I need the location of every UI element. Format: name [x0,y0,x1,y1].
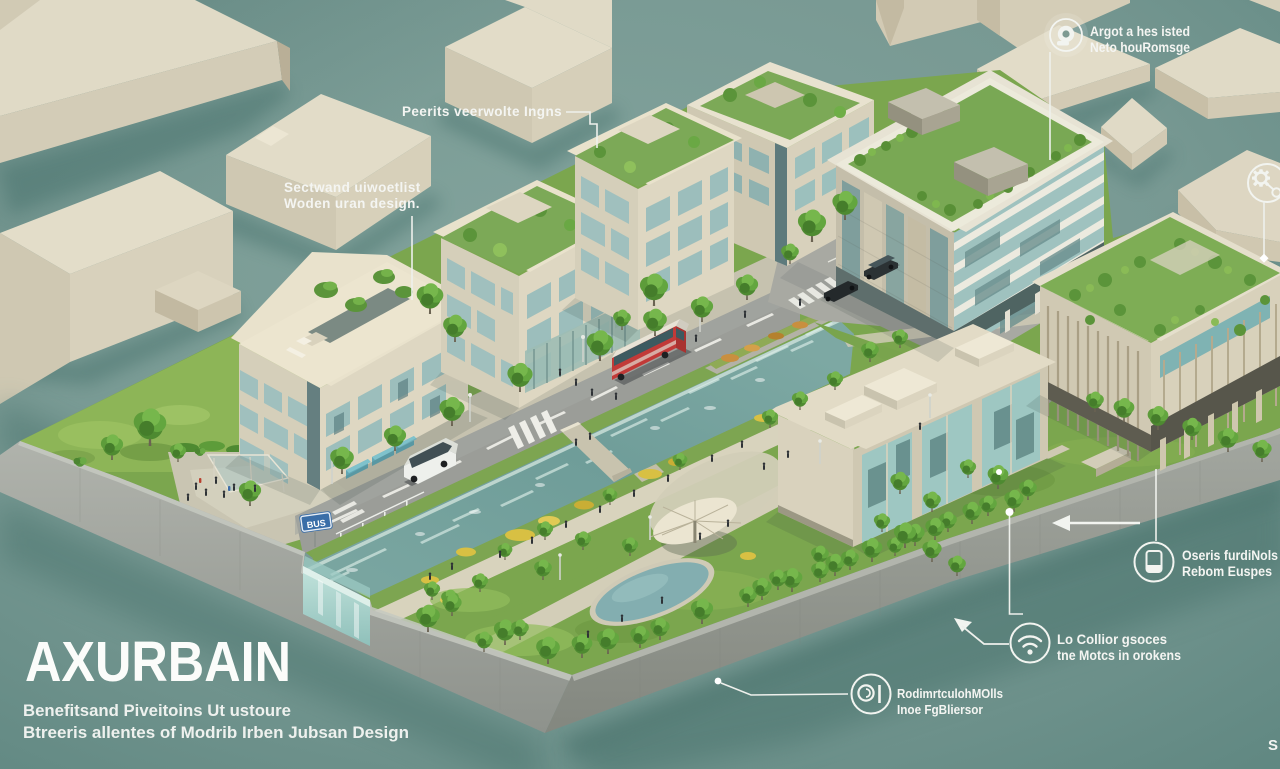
svg-text:RodimrtculohMOlls: RodimrtculohMOlls [897,686,1003,701]
svg-text:Neto houRomsge: Neto houRomsge [1090,40,1190,55]
svg-text:Inoe FgBliersor: Inoe FgBliersor [897,702,983,717]
svg-text:Benefitsand Piveitoins Ut usto: Benefitsand Piveitoins Ut ustoure [23,702,291,720]
svg-text:S: S [1268,737,1278,754]
svg-text:tne Motcs in orokens: tne Motcs in orokens [1057,648,1181,663]
svg-text:Lo Collior gsoces: Lo Collior gsoces [1057,632,1167,647]
svg-text:Btreeris allentes of Modrib Ir: Btreeris allentes of Modrib Irben Jubsan… [23,724,409,742]
svg-text:Oseris furdiNols: Oseris furdiNols [1182,548,1278,563]
svg-text:AXURBAIN: AXURBAIN [25,630,291,694]
svg-text:Sectwand uiwoetlist: Sectwand uiwoetlist [284,180,421,195]
svg-text:Peerits veerwolte Ingns: Peerits veerwolte Ingns [402,104,562,119]
svg-text:Woden uran design.: Woden uran design. [284,196,420,211]
svg-text:Rebom Euspes: Rebom Euspes [1182,564,1272,579]
svg-text:Argot a hes isted: Argot a hes isted [1090,24,1190,39]
